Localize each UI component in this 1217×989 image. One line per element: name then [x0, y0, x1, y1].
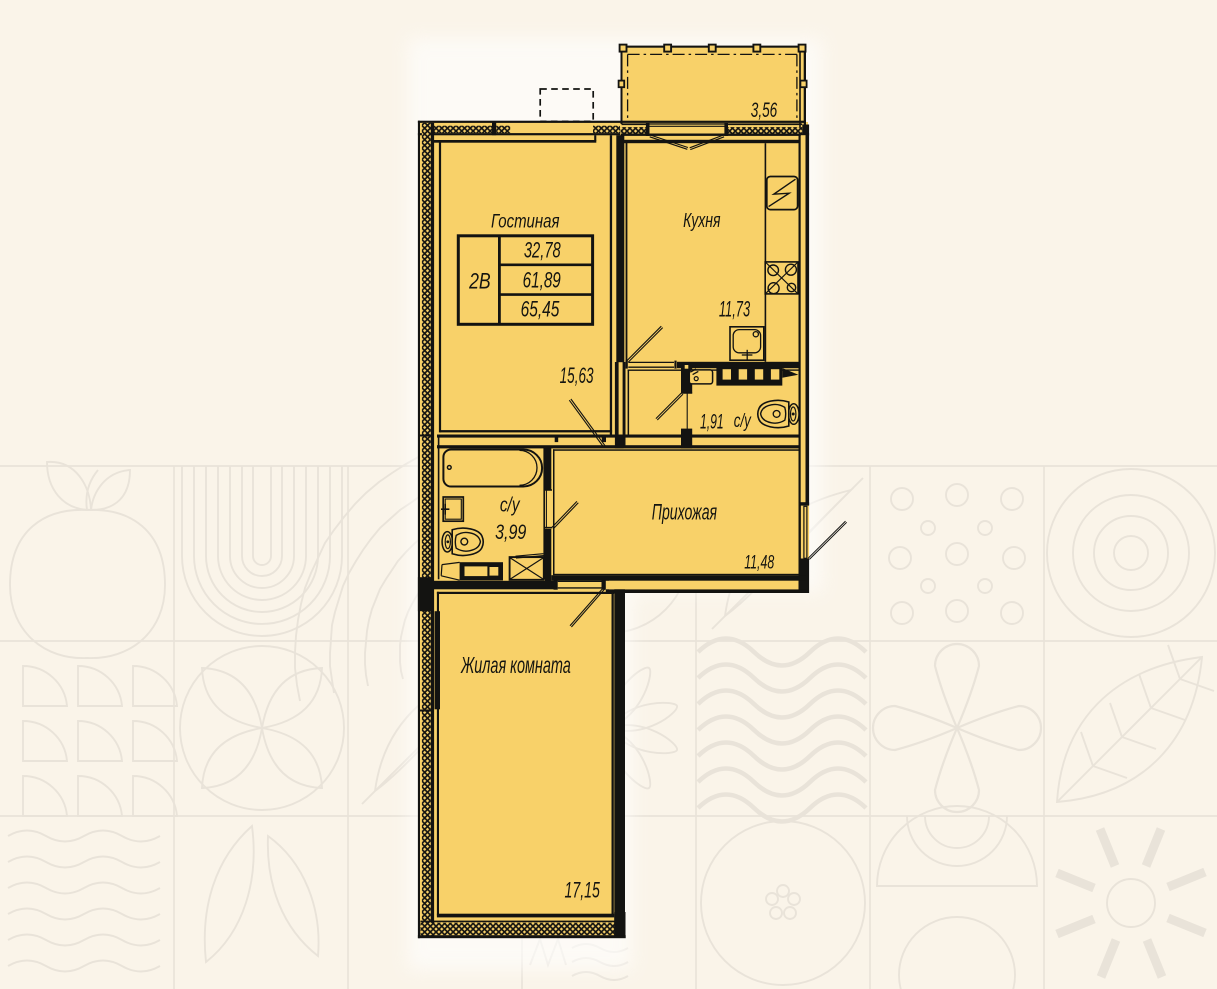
svg-text:15,63: 15,63: [560, 363, 594, 388]
svg-text:Кухня: Кухня: [683, 209, 720, 232]
svg-text:11,48: 11,48: [744, 551, 774, 573]
svg-text:3,99: 3,99: [495, 521, 526, 544]
svg-text:2В: 2В: [468, 269, 490, 294]
svg-text:32,78: 32,78: [524, 238, 561, 263]
svg-text:61,89: 61,89: [523, 267, 561, 292]
svg-text:3,56: 3,56: [751, 99, 778, 122]
svg-text:17,15: 17,15: [565, 878, 601, 903]
svg-text:Гостиная: Гостиная: [491, 211, 560, 232]
svg-text:1,91: 1,91: [700, 410, 724, 434]
svg-text:Жилая комната: Жилая комната: [460, 652, 570, 678]
svg-text:с/у: с/у: [500, 494, 520, 516]
svg-text:Прихожая: Прихожая: [652, 500, 717, 525]
svg-text:65,45: 65,45: [521, 297, 560, 322]
svg-text:с/у: с/у: [734, 410, 752, 432]
svg-text:11,73: 11,73: [719, 297, 751, 322]
